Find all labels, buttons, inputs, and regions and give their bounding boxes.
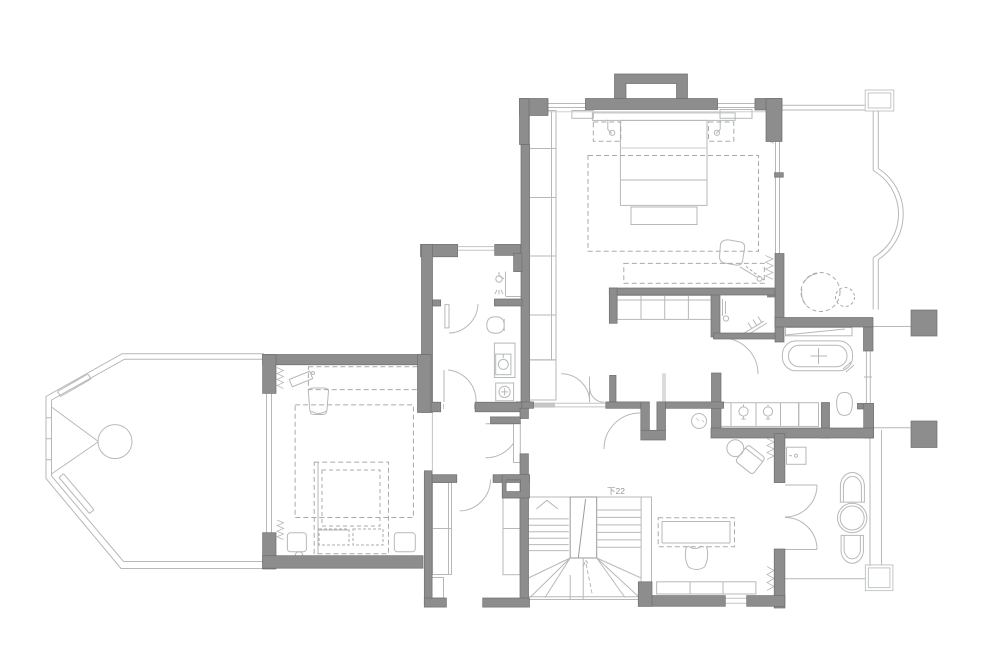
svg-text:下22: 下22 bbox=[607, 486, 625, 496]
